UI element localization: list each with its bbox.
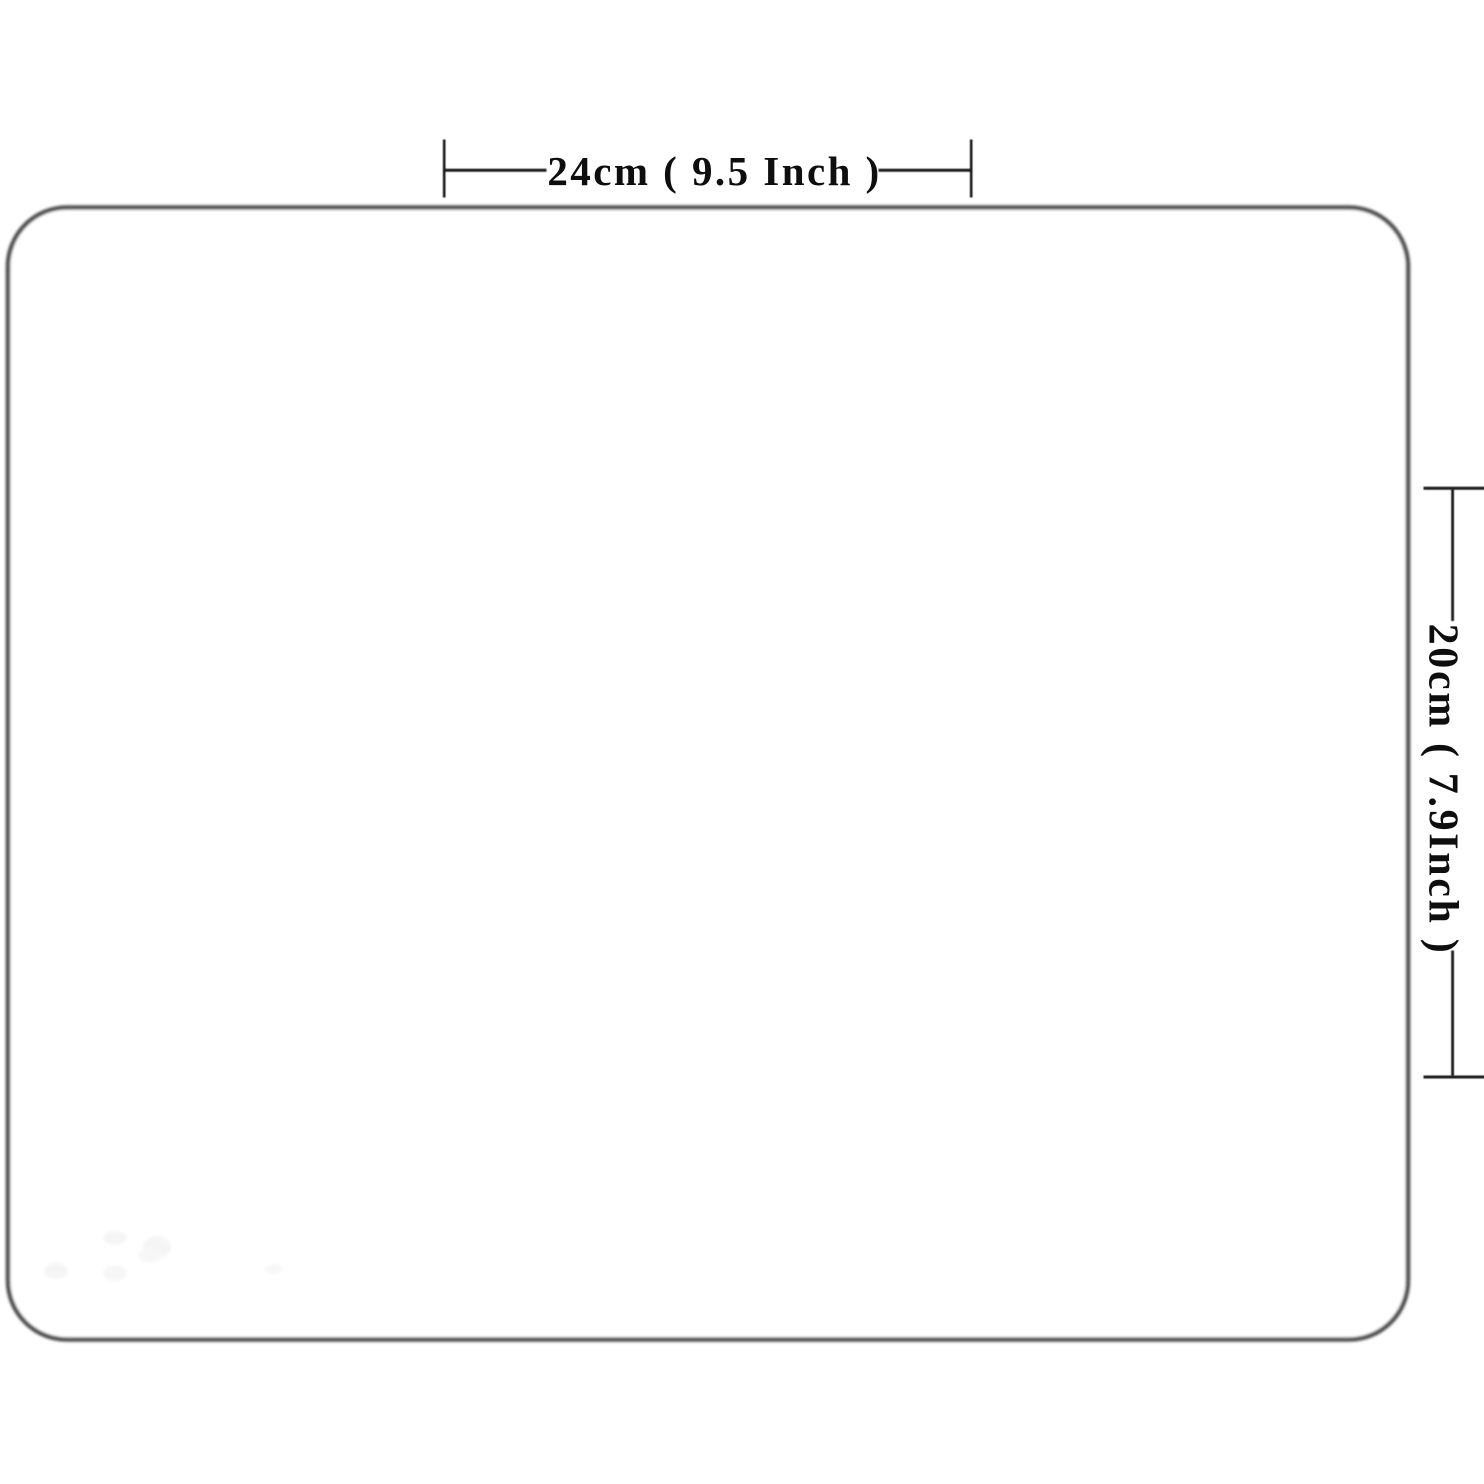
svg-text:24cm ( 9.5 Inch ): 24cm ( 9.5 Inch ) [547, 148, 881, 194]
svg-text:20cm ( 7.9Inch ): 20cm ( 7.9Inch ) [1420, 624, 1466, 956]
